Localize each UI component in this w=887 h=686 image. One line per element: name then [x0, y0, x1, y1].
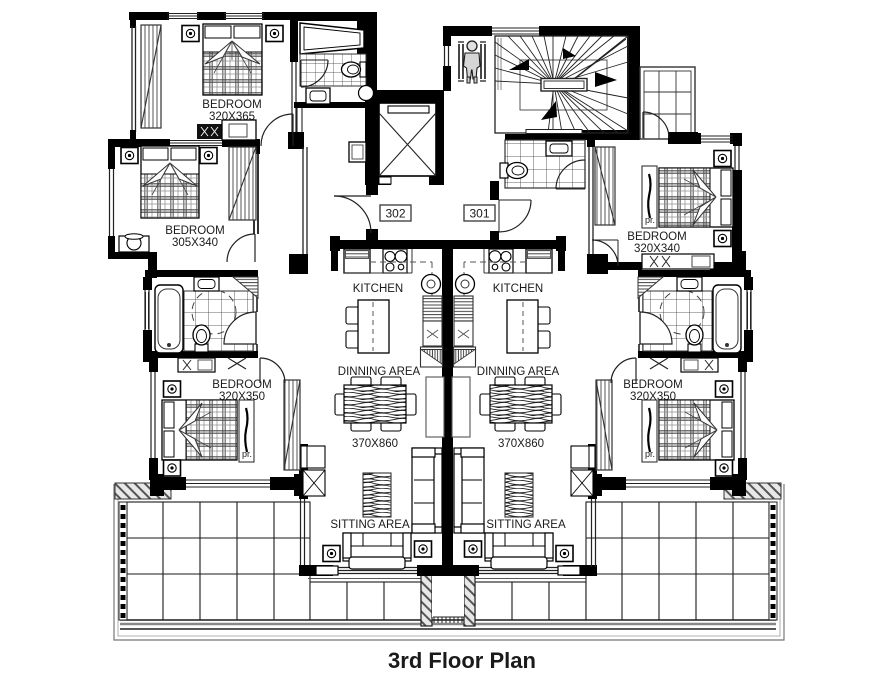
svg-text:pr.: pr.	[645, 215, 655, 225]
svg-text:pr.: pr.	[645, 449, 655, 459]
svg-text:KITCHEN: KITCHEN	[353, 283, 403, 295]
svg-text:DINNING AREA: DINNING AREA	[338, 366, 421, 378]
svg-text:BEDROOM: BEDROOM	[165, 225, 224, 237]
svg-text:320X365: 320X365	[209, 111, 255, 123]
svg-text:370X860: 370X860	[352, 438, 398, 450]
svg-text:SITTING AREA: SITTING AREA	[330, 519, 410, 531]
svg-text:SITTING AREA: SITTING AREA	[486, 519, 566, 531]
svg-text:302: 302	[385, 207, 405, 221]
svg-text:DINNING AREA: DINNING AREA	[477, 366, 560, 378]
svg-text:301: 301	[469, 207, 489, 221]
svg-text:320X350: 320X350	[630, 391, 676, 403]
svg-text:370X860: 370X860	[498, 438, 544, 450]
svg-text:BEDROOM: BEDROOM	[627, 231, 686, 243]
svg-text:3rd Floor Plan: 3rd Floor Plan	[388, 648, 536, 673]
svg-text:BEDROOM: BEDROOM	[623, 379, 682, 391]
svg-text:pr.: pr.	[242, 449, 252, 459]
svg-text:BEDROOM: BEDROOM	[202, 99, 261, 111]
svg-text:KITCHEN: KITCHEN	[493, 283, 543, 295]
svg-text:BEDROOM: BEDROOM	[212, 379, 271, 391]
svg-text:320X350: 320X350	[219, 391, 265, 403]
svg-text:305X340: 305X340	[172, 237, 218, 249]
svg-text:320X340: 320X340	[634, 243, 680, 255]
